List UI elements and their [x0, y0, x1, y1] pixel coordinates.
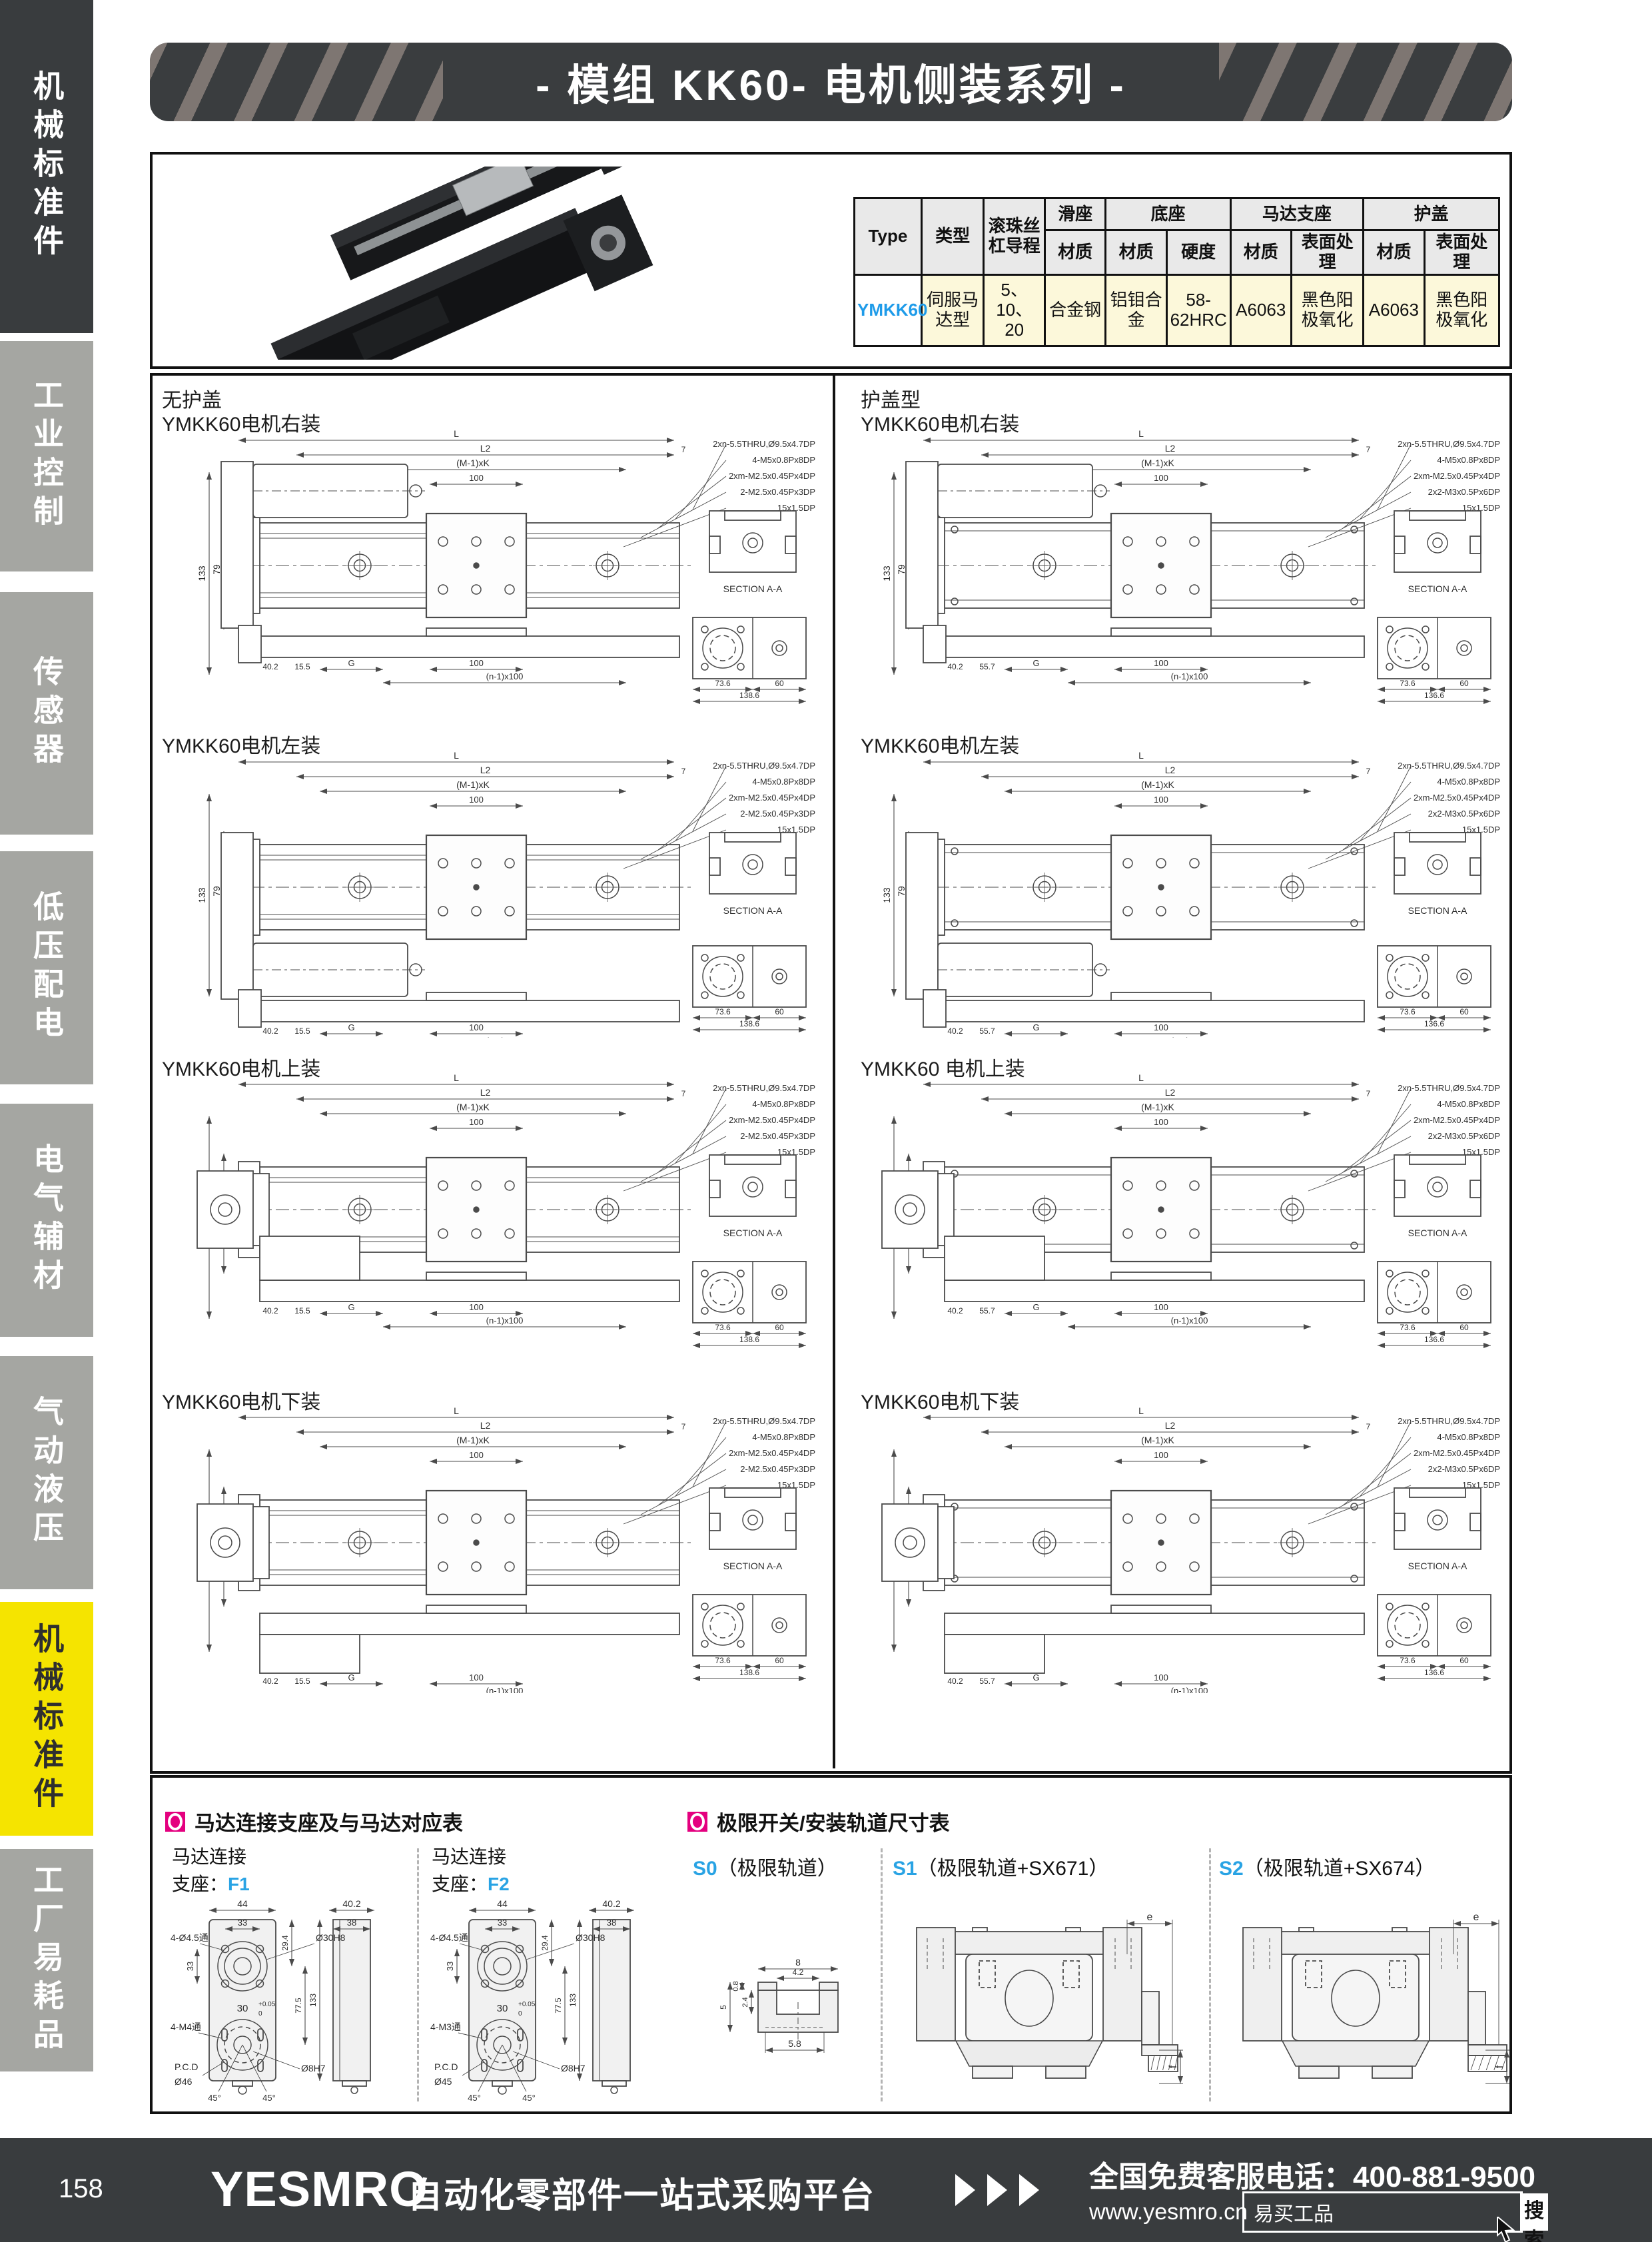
cad-line: [1479, 2055, 1484, 2070]
dim-arrow: [1378, 1331, 1385, 1336]
dim-label: 29.4: [280, 1935, 290, 1951]
dim-arrow: [1352, 452, 1359, 458]
dim-label: 79: [896, 886, 907, 897]
dim-label: L: [454, 430, 459, 439]
dim-arrow: [667, 774, 674, 779]
cad-rect: [882, 1171, 938, 1248]
cell: 合金钢: [1044, 274, 1105, 346]
col-lead: 滚珠丝杠导程: [984, 198, 1044, 275]
dim-arrow: [206, 989, 212, 996]
limit-code: S1: [893, 1858, 917, 1880]
dim-label: L: [454, 751, 459, 761]
dim-label: 133: [568, 1994, 578, 2007]
cad-rect: [945, 1280, 1364, 1302]
dim-arrow: [577, 2073, 582, 2081]
dim-label: 45°: [262, 2093, 276, 2103]
bracket-label-line2: 支座：F1: [172, 1871, 250, 1898]
dim-arrow: [1378, 1015, 1385, 1020]
dim-arrow: [430, 1126, 437, 1131]
subcol: 材质: [1230, 230, 1291, 275]
dim-label: 2xm-M2.5x0.45Px4DP: [1414, 793, 1500, 803]
dim-label: SECTION A-A: [1408, 1228, 1467, 1238]
dim-label: SECTION A-A: [723, 905, 783, 916]
cad-rect: [260, 1635, 360, 1673]
dim-label: 73.6: [715, 1323, 731, 1332]
dim-arrow: [1114, 1459, 1122, 1464]
dim-label: L2: [1165, 443, 1176, 454]
dim-arrow: [1483, 1331, 1491, 1336]
yesmro-logo: YESMRO: [210, 2161, 428, 2217]
sidebar-item-label: 电气辅材: [25, 1143, 69, 1298]
dim-arrow: [619, 680, 626, 685]
dim-arrow: [667, 1429, 674, 1435]
cad-rect: [232, 2081, 252, 2086]
dim-label: SECTION A-A: [1408, 1561, 1467, 1571]
dim-arrow: [667, 1096, 674, 1102]
cad-rect: [426, 1272, 526, 1280]
dim-label: G: [348, 1022, 354, 1032]
dim-label: 33: [238, 1918, 247, 1928]
search-input[interactable]: [1244, 2193, 1520, 2231]
cad-rect: [945, 1613, 1364, 1635]
dim-label: 77.5: [294, 1998, 303, 2014]
dim-label: 100: [469, 473, 484, 483]
limit-code: S2: [1219, 1858, 1244, 1880]
dim-label: 100: [469, 1673, 484, 1682]
dim-arrow: [891, 667, 897, 675]
dim-arrow: [1114, 803, 1122, 809]
dim-arrow: [195, 1949, 200, 1956]
drawing-right-left: LL2(M-1)xK1007133792xn-5.5THRU,Ø9.5x4.7D…: [845, 751, 1504, 1038]
dim-label: 60: [775, 679, 784, 688]
dim-label: 60: [1459, 1656, 1469, 1665]
divider-dashed: [417, 1848, 419, 2101]
dim-label: 100: [1154, 1117, 1168, 1127]
cad-rect: [1299, 2066, 1339, 2078]
dim-label: 38: [347, 1918, 356, 1928]
dim-label: 73.6: [1400, 679, 1416, 688]
sidebar-item-3: 低压配电: [0, 851, 93, 1084]
dim-label: 4-M5x0.8Px8DP: [752, 455, 815, 465]
dim-label: 2xn-5.5THRU,Ø9.5x4.7DP: [713, 761, 815, 771]
dim-arrow: [289, 1959, 294, 1966]
cell: 5、10、20: [984, 274, 1044, 346]
dim-arrow: [516, 482, 523, 487]
dim-arrow: [1127, 1921, 1134, 1926]
dim-arrow: [1005, 1311, 1012, 1316]
dim-label: 7: [1366, 767, 1371, 776]
dim-label: 2xn-5.5THRU,Ø9.5x4.7DP: [1398, 439, 1500, 449]
dim-label: 73.6: [1400, 1323, 1416, 1332]
footer: 158 YESMRO 自动化零部件一站式采购平台 全国免费客服电话：400-88…: [0, 2138, 1652, 2242]
cad-rect: [923, 625, 946, 663]
dim-arrow: [799, 1676, 806, 1681]
sidebar-item-2: 传感器: [0, 592, 93, 835]
dim-arrow: [302, 1966, 308, 1974]
dim-arrow: [799, 1027, 806, 1032]
cad-rect: [945, 1635, 1044, 1673]
phone-label: 全国免费客服电话：: [1089, 2161, 1353, 2193]
drawing-left-top: LL2(M-1)xK1007133792xn-5.5THRU,Ø9.5x4.7D…: [160, 1074, 819, 1360]
dim-arrow: [1304, 680, 1311, 685]
cad-circle: [1158, 885, 1164, 890]
dim-arrow: [516, 1459, 523, 1464]
page-number: 158: [59, 2174, 103, 2204]
dim-label: 4-M5x0.8Px8DP: [752, 1099, 815, 1109]
cad-line: [1360, 782, 1411, 841]
dim-arrow: [206, 472, 212, 480]
dim-label: 2xn-5.5THRU,Ø9.5x4.7DP: [713, 439, 815, 449]
product-photo: [233, 167, 686, 360]
dim-label: 2-M2.5x0.45Px3DP: [740, 1131, 815, 1141]
column-divider: [833, 373, 835, 1768]
dim-arrow: [221, 1487, 226, 1494]
cad-circle: [1158, 563, 1164, 568]
dim-label: 45°: [468, 2093, 481, 2103]
dim-arrow: [1178, 2076, 1183, 2083]
dim-arrow: [799, 1331, 806, 1336]
dim-label: 133: [881, 887, 892, 903]
dim-arrow: [1068, 680, 1075, 685]
dim-arrow: [693, 1015, 700, 1020]
dim-arrow: [469, 1908, 476, 1913]
dim-label: 0: [258, 2010, 262, 2018]
dim-arrow: [1304, 1111, 1311, 1116]
dim-arrow: [317, 2073, 322, 2081]
dim-label: 138.6: [739, 1668, 759, 1677]
dim-label: 60: [775, 1656, 784, 1665]
dim-label: +0.05: [518, 2001, 536, 2008]
dim-label: 2xn-5.5THRU,Ø9.5x4.7DP: [713, 1083, 815, 1093]
subcol: 表面处理: [1424, 230, 1499, 275]
dim-label: G: [348, 1302, 354, 1312]
dim-arrow: [693, 1664, 700, 1669]
cad-rect: [973, 2066, 1013, 2078]
dim-arrow: [1200, 1126, 1208, 1131]
dim-label: 4-Ø4.5通: [430, 1932, 468, 1943]
dim-label: e: [1147, 1912, 1153, 1923]
dim-arrow: [296, 1429, 304, 1435]
cad-rect: [209, 1920, 276, 2081]
dim-arrow: [320, 667, 327, 672]
sidebar-item-label: 传感器: [25, 655, 69, 771]
dim-arrow: [238, 759, 246, 765]
dim-arrow: [619, 1444, 626, 1449]
dim-label: SECTION A-A: [1408, 583, 1467, 594]
dim-arrow: [619, 1324, 626, 1329]
dim-label: 4.2: [793, 1968, 804, 1977]
dim-arrow: [667, 438, 674, 443]
cad-circle: [1158, 1207, 1164, 1212]
dim-label: 4-M5x0.8Px8DP: [752, 777, 815, 787]
dim-label: 138.6: [739, 1335, 759, 1344]
dim-label: 2xn-5.5THRU,Ø9.5x4.7DP: [713, 1416, 815, 1426]
cad-rect: [593, 1920, 630, 2081]
cad-line: [1151, 2055, 1154, 2070]
dim-label: 40.2: [262, 1306, 278, 1315]
cad-rect: [906, 462, 938, 628]
dim-label: 100: [469, 795, 484, 805]
dim-label: L: [1138, 1074, 1144, 1083]
cad-line: [1360, 460, 1411, 519]
dim-label: 73.6: [715, 1656, 731, 1665]
dim-label: Ø30H8: [316, 1932, 346, 1943]
dim-arrow: [1352, 1429, 1359, 1435]
dim-arrow: [749, 1990, 754, 1998]
cursor-icon: [1496, 2217, 1519, 2242]
dim-arrow: [516, 803, 523, 809]
dim-label: 133: [881, 565, 892, 581]
dim-arrow: [981, 452, 989, 458]
dim-arrow: [367, 1908, 374, 1913]
dim-arrow: [981, 1096, 989, 1102]
dim-label: 77.5: [554, 1998, 563, 2014]
dim-label: P.C.D: [175, 2061, 199, 2072]
dim-arrow: [430, 1031, 437, 1036]
cad-rect: [1103, 1928, 1142, 2041]
dim-label: 136.6: [1424, 1335, 1444, 1344]
cad-rect: [342, 2081, 366, 2086]
cell: 铝钼合金: [1106, 274, 1166, 346]
dim-arrow: [891, 1645, 897, 1652]
cad-line: [693, 1088, 726, 1154]
dim-arrow: [1114, 1126, 1122, 1131]
sidebar-item-5: 气动液压: [0, 1356, 93, 1589]
dim-label: 40.2: [602, 1898, 620, 1909]
dim-label: 100: [469, 1022, 484, 1032]
limit-rail-profile: 84.20.82.455.8: [698, 1902, 878, 2069]
dim-label: 100: [1154, 1673, 1168, 1682]
cad-circle: [1158, 1540, 1164, 1545]
sidebar-item-6: 机械标准件: [0, 1602, 93, 1836]
cad-rect: [1392, 1928, 1407, 1932]
cad-rect: [758, 1982, 777, 1990]
dim-label: Ø8H7: [561, 2063, 586, 2073]
dim-label: (M-1)xK: [1141, 779, 1174, 790]
dim-label: (M-1)xK: [456, 458, 490, 468]
dim-arrow: [376, 1031, 383, 1036]
cad-rect: [260, 1280, 679, 1302]
dim-label: 30: [497, 2003, 508, 2014]
limit-switch-title-text: 极限开关/安装轨道尺寸表: [717, 1806, 950, 1836]
dim-label: L2: [480, 765, 491, 775]
drawing-left-bottom: LL2(M-1)xK1007133792xn-5.5THRU,Ø9.5x4.7D…: [160, 1407, 819, 1693]
cad-rect: [917, 1928, 955, 2041]
dim-arrow: [317, 1920, 322, 1927]
cell: 黑色阳极氧化: [1292, 274, 1364, 346]
dim-arrow: [1491, 1921, 1499, 1926]
dim-label: 40.2: [947, 662, 963, 671]
dim-label: 33: [185, 1962, 195, 1971]
drawing-right-top: LL2(M-1)xK1007133792xn-5.5THRU,Ø9.5x4.7D…: [845, 1074, 1504, 1360]
dim-label: 2xn-5.5THRU,Ø9.5x4.7DP: [1398, 761, 1500, 771]
cad-rect: [1066, 1928, 1080, 1932]
bracket-drawing-F1: 44334-Ø4.5通Ø30H840.2383329.477.513330+0.…: [165, 1897, 405, 2107]
dim-arrow: [1483, 699, 1491, 704]
dim-arrow: [549, 1920, 554, 1927]
dim-arrow: [1483, 1027, 1491, 1032]
dim-label: 133: [197, 565, 207, 581]
dim-label: 7: [681, 767, 686, 776]
dim-label: 5.8: [788, 2038, 801, 2049]
search-box: 搜索: [1242, 2191, 1523, 2233]
cad-line: [1378, 1421, 1411, 1487]
limit-label-S2: S2（极限轨道+SX674）: [1219, 1852, 1435, 1881]
dim-label: 7: [1366, 445, 1371, 454]
dim-arrow: [238, 1415, 246, 1420]
limit-name: （极限轨道+SX671）: [917, 1858, 1109, 1880]
dim-label: 73.6: [715, 1007, 731, 1016]
cad-rect: [1111, 628, 1211, 636]
dim-label: 4-Ø4.5通: [171, 1932, 208, 1943]
cad-rect: [260, 1000, 679, 1022]
dim-arrow: [891, 1116, 897, 1124]
dim-arrow: [891, 1311, 897, 1319]
cad-circle: [238, 2086, 246, 2094]
limit-code: S0: [693, 1858, 717, 1880]
dim-arrow: [891, 794, 897, 801]
cad-path: [956, 2041, 1102, 2066]
cad-rect: [253, 1174, 269, 1246]
cad-rect: [1142, 1992, 1159, 2045]
dim-arrow: [430, 667, 437, 672]
dim-arrow: [1378, 1676, 1385, 1681]
dim-label: 133: [308, 1994, 318, 2007]
cad-circle: [611, 2087, 618, 2093]
dim-label: 40.2: [342, 1898, 360, 1909]
triple-arrow-icon: [955, 2170, 1055, 2210]
dim-label: Ø45: [434, 2076, 452, 2087]
cad-line: [1163, 2055, 1166, 2070]
dim-arrow: [221, 1599, 226, 1607]
dim-arrow: [765, 2048, 773, 2053]
cad-line: [1378, 444, 1411, 510]
cad-rect: [1299, 1928, 1314, 1932]
dim-label: L: [1138, 430, 1144, 439]
cad-rect: [966, 1954, 1092, 2041]
subcol: 材质: [1106, 230, 1166, 275]
cad-rect: [1243, 1928, 1282, 2041]
dim-label: G: [348, 1673, 354, 1682]
cad-rect: [260, 1613, 679, 1635]
dim-label: (n-1)x100: [1171, 671, 1208, 681]
dim-arrow: [320, 1444, 327, 1449]
subcol: 材质: [1044, 230, 1105, 275]
cad-rect: [945, 636, 1364, 657]
dim-arrow: [799, 687, 806, 692]
dim-arrow: [1504, 2076, 1509, 2083]
cad-line: [1486, 2055, 1491, 2070]
subcol: 硬度: [1166, 230, 1230, 275]
dim-arrow: [749, 2007, 754, 2014]
dim-arrow: [302, 2038, 308, 2045]
dim-arrow: [1378, 1664, 1385, 1669]
dim-arrow: [454, 1976, 460, 1984]
dim-label: G: [348, 658, 354, 668]
dim-label: (n-1)x100: [1171, 1036, 1208, 1038]
spec-table: Type 类型 滚珠丝杠导程 滑座 底座 马达支座 护盖 材质 材质 硬度 材质…: [853, 197, 1500, 347]
dim-arrow: [383, 1324, 390, 1329]
dim-arrow: [1165, 1921, 1172, 1926]
drawing-left-left: LL2(M-1)xK1007133792xn-5.5THRU,Ø9.5x4.7D…: [160, 751, 819, 1038]
cad-rect: [1430, 1928, 1468, 2041]
dim-label: L: [454, 1407, 459, 1416]
limit-switch-assy-S1: ef: [893, 1892, 1186, 2091]
cad-rect: [819, 1982, 838, 1990]
dim-label: (n-1)x100: [1171, 1686, 1208, 1693]
cad-line: [693, 444, 726, 510]
dim-arrow: [693, 699, 700, 704]
dim-arrow: [693, 1676, 700, 1681]
dim-label: 136.6: [1424, 691, 1444, 700]
cad-line: [693, 1421, 726, 1487]
pink-bullet-icon: [687, 1812, 707, 1832]
dim-arrow: [1378, 1027, 1385, 1032]
dim-label: 100: [1154, 795, 1168, 805]
dim-arrow: [289, 1920, 294, 1927]
dim-arrow: [430, 1681, 437, 1686]
grp-cover: 护盖: [1364, 198, 1499, 230]
dim-label: 15.5: [294, 662, 310, 671]
dim-label: 0: [518, 2010, 522, 2018]
dim-arrow: [195, 1976, 200, 1984]
dim-arrow: [376, 1311, 383, 1316]
dim-label: 40.2: [262, 1677, 278, 1686]
dim-arrow: [430, 1459, 437, 1464]
dim-arrow: [923, 759, 931, 765]
dim-arrow: [206, 1116, 212, 1124]
dim-label: 60: [1459, 679, 1469, 688]
dim-label: (n-1)x100: [486, 1036, 524, 1038]
dim-label: (n-1)x100: [1171, 1315, 1208, 1325]
dim-label: 2-M2.5x0.45Px3DP: [740, 1464, 815, 1474]
subcol: 表面处理: [1292, 230, 1364, 275]
dim-label: 60: [775, 1007, 784, 1016]
cad-rect: [938, 1507, 954, 1579]
dim-label: 2xm-M2.5x0.45Px4DP: [729, 793, 815, 803]
dim-arrow: [923, 438, 931, 443]
cad-rect: [938, 1174, 954, 1246]
dim-label: G: [1032, 658, 1039, 668]
dim-arrow: [627, 1908, 634, 1913]
dim-arrow: [320, 1111, 327, 1116]
sidebar-item-label: 低压配电: [25, 891, 69, 1045]
dim-label: 40.2: [262, 1026, 278, 1036]
dim-label: 40.2: [947, 1677, 963, 1686]
dim-label: 100: [1154, 473, 1168, 483]
dim-arrow: [376, 667, 383, 672]
dim-label: f: [1494, 2065, 1505, 2068]
dim-label: 100: [469, 1302, 484, 1312]
search-button[interactable]: 搜索: [1520, 2193, 1548, 2231]
dim-label: 45°: [208, 2093, 221, 2103]
dim-arrow: [891, 989, 897, 996]
dim-label: 2x2-M3x0.5Px6DP: [1428, 1131, 1500, 1141]
cad-rect: [426, 1605, 526, 1613]
dim-label: 7: [1366, 1089, 1371, 1098]
cad-line: [1471, 2055, 1476, 2070]
dim-label: 40.2: [947, 1026, 963, 1036]
dim-arrow: [667, 452, 674, 458]
dim-label: 30: [237, 2003, 248, 2014]
cad-path: [1282, 2041, 1429, 2066]
sidebar-item-label: 工厂易耗品: [25, 1864, 69, 2057]
dim-label: L2: [480, 443, 491, 454]
dim-label: 138.6: [739, 691, 759, 700]
dim-arrow: [1483, 687, 1491, 692]
bracket-code: F1: [228, 1874, 250, 1894]
bracket-label-line2: 支座：F2: [432, 1871, 510, 1898]
